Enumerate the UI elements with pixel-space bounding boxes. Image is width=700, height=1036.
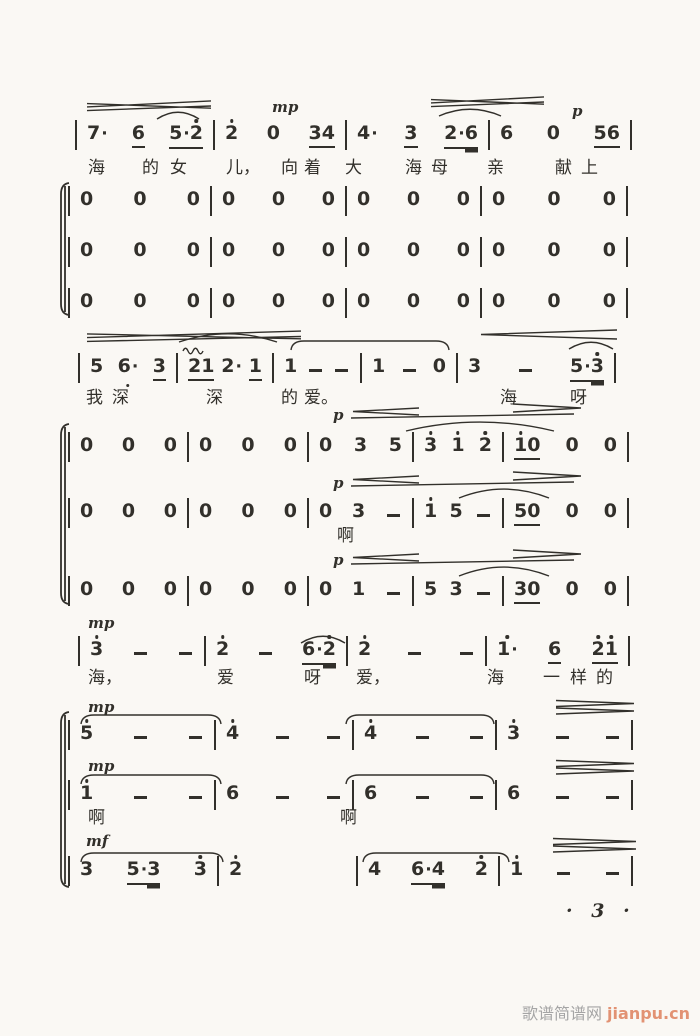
measure: 2 — [217, 856, 356, 886]
note: 6· — [118, 355, 139, 379]
measure: 4 — [214, 720, 352, 750]
rest-note: 0 — [357, 290, 370, 313]
dash-extension — [187, 722, 204, 745]
lyric-syllable: 啊 — [337, 528, 354, 545]
rest-note: 0 — [80, 434, 93, 457]
rest-note: 0 — [547, 122, 560, 145]
note: 3 — [352, 500, 365, 523]
rest-note: 0 — [457, 188, 470, 211]
measure: 1 — [498, 856, 633, 886]
note: 7· — [87, 122, 108, 146]
rest-note: 0 — [407, 188, 420, 211]
note: 6 — [500, 122, 513, 145]
slur — [458, 486, 550, 499]
rest-note: 0 — [322, 239, 335, 262]
dash-extension — [475, 578, 492, 601]
rest-note: 0 — [241, 578, 254, 601]
note: 2 — [190, 122, 203, 149]
decrescendo-hairpin — [512, 471, 582, 481]
rest-note: 0 — [199, 434, 212, 457]
note: 1 — [451, 434, 464, 457]
note: 2 — [229, 858, 242, 881]
lyric-syllable: 一 — [543, 670, 560, 687]
measure: 5000 — [502, 498, 629, 528]
beamed-note-group: 2·6 — [444, 122, 478, 149]
rest-note: 0 — [492, 188, 505, 211]
system-1-melody: 7·65·220344·32·66056 — [75, 120, 632, 150]
lyric-syllable: 女 — [170, 160, 187, 177]
rest-row-2: 000000000000 — [68, 237, 628, 267]
rest-note: 0 — [603, 290, 616, 313]
dash-extension — [257, 638, 274, 661]
dash-extension — [604, 782, 621, 805]
lyric-syllable: 啊 — [88, 810, 105, 827]
dash-extension — [274, 782, 291, 805]
note: 1 — [424, 500, 437, 523]
measure: 3 — [495, 720, 633, 750]
rest-note: 0 — [272, 188, 285, 211]
rest-note: 0 — [603, 239, 616, 262]
measure: 1 — [272, 353, 360, 383]
rest-note: 0 — [80, 290, 93, 313]
rest-note: 0 — [603, 188, 616, 211]
rest-note: 0 — [319, 578, 332, 601]
measure: 000 — [187, 498, 307, 528]
measure: 000 — [187, 432, 307, 462]
note: 4· — [357, 122, 378, 146]
dynamic-marking: p — [333, 553, 344, 568]
note: 3 — [153, 355, 166, 381]
slur — [458, 564, 550, 577]
note: 2· — [221, 355, 242, 379]
note: 6 — [548, 638, 561, 664]
slur — [80, 714, 222, 725]
beamed-note-group: 56 — [594, 122, 620, 148]
note: 5 — [514, 500, 527, 526]
measure: 000 — [210, 237, 345, 267]
decrescendo-hairpin — [512, 549, 582, 559]
measure: 1·621 — [485, 636, 630, 666]
slur — [345, 714, 495, 725]
measure: 2034 — [213, 120, 345, 150]
rest-note: 0 — [527, 578, 540, 604]
slur — [156, 110, 200, 120]
dynamic-marking: mp — [88, 616, 114, 631]
dash-extension — [554, 782, 571, 805]
rest-note: 0 — [241, 500, 254, 523]
hairpin-swell — [430, 96, 545, 108]
rest-note: 0 — [133, 239, 146, 262]
measure: 000 — [68, 432, 187, 462]
beamed-note-group: 34 — [309, 122, 335, 148]
rest-note: 0 — [319, 500, 332, 523]
lyric-syllable: 啊 — [340, 810, 357, 827]
measure: 3 — [78, 636, 204, 666]
note: 3 — [404, 122, 417, 148]
rest-note: 0 — [547, 290, 560, 313]
lyric-syllable: 样 — [570, 670, 587, 687]
rest-note: 0 — [322, 188, 335, 211]
slur — [405, 419, 555, 432]
note: 2 — [592, 638, 605, 664]
rest-note: 0 — [527, 500, 540, 526]
dash-extension — [414, 722, 431, 745]
note: 1 — [201, 355, 214, 381]
rest-note: 0 — [80, 239, 93, 262]
note: 6 — [507, 782, 520, 805]
rest-note: 0 — [357, 188, 370, 211]
lyric-syllable: 深 — [206, 390, 223, 407]
rest-note: 0 — [272, 290, 285, 313]
dash-extension — [414, 782, 431, 805]
measure: 56·3 — [78, 353, 176, 383]
rest-note: 0 — [604, 500, 617, 523]
rest-note: 0 — [407, 239, 420, 262]
dash-extension — [187, 782, 204, 805]
rest-note: 0 — [547, 239, 560, 262]
lyric-syllable: 海 — [487, 670, 504, 687]
dash-extension — [555, 858, 572, 881]
dash-extension — [385, 578, 402, 601]
rest-note: 0 — [357, 239, 370, 262]
dash-extension — [385, 500, 402, 523]
rest-note: 0 — [199, 578, 212, 601]
rest-note: 0 — [222, 239, 235, 262]
note: 3 — [468, 355, 481, 378]
slur — [80, 774, 222, 785]
slur — [568, 340, 614, 350]
mordent-ornament — [182, 345, 204, 353]
rest-note: 0 — [322, 290, 335, 313]
lyric-syllable: 的 — [142, 160, 159, 177]
note: 4 — [322, 122, 335, 148]
rest-note: 0 — [284, 578, 297, 601]
note: 6 — [465, 122, 478, 149]
measure: 6056 — [488, 120, 632, 150]
note: 6 — [607, 122, 620, 148]
dash-extension — [132, 638, 149, 661]
measure: 15 — [412, 498, 502, 528]
rest-note: 0 — [492, 290, 505, 313]
lyric-syllable: 深 — [112, 390, 129, 407]
measure: 03 — [307, 498, 412, 528]
note: 6 — [364, 782, 377, 805]
slur — [300, 634, 346, 644]
rest-note: 0 — [187, 239, 200, 262]
lyric-syllable: 的 — [281, 390, 298, 407]
note: 6 — [226, 782, 239, 805]
measure: 6 — [495, 780, 633, 810]
watermark-site-name: 歌谱简谱网 — [522, 1004, 602, 1023]
watermark: 歌谱简谱网 jianpu.cn — [522, 1006, 690, 1022]
decrescendo-hairpin — [512, 403, 582, 413]
watermark-site-url: jianpu.cn — [607, 1004, 690, 1023]
measure: 000 — [210, 186, 345, 216]
rest-note: 0 — [187, 290, 200, 313]
note: 3 — [309, 122, 322, 148]
accomp-row-3: 00000001533000 — [68, 576, 629, 606]
note: 1 — [514, 434, 527, 460]
rest-note: 0 — [164, 578, 177, 601]
rest-note: 0 — [199, 500, 212, 523]
beamed-note-group: 21 — [592, 638, 618, 664]
note: 5 — [450, 500, 463, 523]
dynamic-marking: p — [333, 408, 344, 423]
dash-extension — [554, 722, 571, 745]
rest-note: 0 — [80, 500, 93, 523]
note: 1 — [352, 578, 365, 601]
lyric-syllable: 上 — [581, 160, 598, 177]
rest-note: 0 — [222, 290, 235, 313]
lyric-syllable: 海 — [88, 160, 105, 177]
lyric-syllable: 的 — [596, 670, 613, 687]
rest-note: 0 — [527, 434, 540, 460]
beamed-note-group: 21 — [188, 355, 214, 381]
dash-extension — [177, 638, 194, 661]
measure: 000 — [68, 576, 187, 606]
rest-row-1: 000000000000 — [68, 186, 628, 216]
decrescendo-hairpin-double — [555, 700, 635, 714]
dash-extension — [604, 858, 621, 881]
rest-note: 0 — [566, 578, 579, 601]
rest-note: 0 — [566, 500, 579, 523]
rest-note: 0 — [566, 434, 579, 457]
measure: 3000 — [502, 576, 629, 606]
slur — [438, 107, 502, 117]
crescendo-hairpin — [480, 329, 618, 340]
beamed-note-group: 10 — [514, 434, 540, 460]
note: 3 — [507, 722, 520, 745]
accomp-row-2: 00000003155000 — [68, 498, 629, 528]
decrescendo-hairpin-double — [552, 838, 637, 852]
note: 1 — [605, 638, 618, 664]
note: 6 — [132, 122, 145, 148]
note: 5 — [594, 122, 607, 148]
note: 4 — [226, 722, 239, 745]
note: 2· — [444, 122, 465, 149]
beamed-note-group: 50 — [514, 500, 540, 526]
rest-note: 0 — [492, 239, 505, 262]
note: 3 — [90, 638, 103, 661]
rest-note: 0 — [122, 500, 135, 523]
measure: 000 — [480, 186, 628, 216]
measure: 000 — [480, 237, 628, 267]
note: 3 — [514, 578, 527, 604]
rest-note: 0 — [407, 290, 420, 313]
rest-note: 0 — [164, 500, 177, 523]
dash-extension — [458, 638, 475, 661]
measure: 000 — [345, 186, 480, 216]
system-2-melody: 56·3212·111035·3 — [78, 353, 616, 383]
rest-row-3: 000000000000 — [68, 288, 628, 318]
dash-extension — [132, 782, 149, 805]
measure: 2 — [346, 636, 485, 666]
note: 2 — [358, 638, 371, 661]
note: 5· — [570, 355, 591, 382]
rest-note: 0 — [457, 239, 470, 262]
note: 1· — [497, 638, 518, 662]
rest-note: 0 — [122, 578, 135, 601]
beamed-note-group: 30 — [514, 578, 540, 604]
dash-extension — [274, 722, 291, 745]
rest-note: 0 — [547, 188, 560, 211]
measure: 35·3 — [456, 353, 616, 383]
note: 2 — [216, 638, 229, 661]
rest-note: 0 — [272, 239, 285, 262]
dash-extension — [307, 355, 324, 378]
dash-extension — [406, 638, 423, 661]
dash-extension — [401, 355, 418, 378]
rest-note: 0 — [457, 290, 470, 313]
lyric-syllable: 爱， — [356, 670, 390, 687]
dash-extension — [132, 722, 149, 745]
rest-note: 0 — [80, 188, 93, 211]
lyric-syllable: 亲 — [487, 160, 504, 177]
lyric-syllable: 大 — [345, 160, 362, 177]
system-bracket — [58, 182, 70, 316]
measure: 53 — [412, 576, 502, 606]
dash-extension — [468, 722, 485, 745]
slur — [80, 852, 224, 863]
measure: 212·1 — [176, 353, 272, 383]
measure: 000 — [480, 288, 628, 318]
slur — [178, 331, 278, 343]
dynamic-marking: p — [572, 104, 583, 119]
lyric-syllable: 向 — [281, 160, 298, 177]
note: 2 — [479, 434, 492, 457]
lyric-syllable: 我 — [86, 390, 103, 407]
rest-note: 0 — [319, 434, 332, 457]
measure: 035 — [307, 432, 412, 462]
rest-note: 0 — [133, 188, 146, 211]
measure: 000 — [345, 237, 480, 267]
lyric-syllable: 海， — [88, 670, 122, 687]
lyric-syllable: 献 — [555, 160, 572, 177]
rest-note: 0 — [433, 355, 446, 378]
beamed-note-group: 5·3 — [570, 355, 604, 382]
note: 1 — [80, 782, 93, 805]
dash-extension — [333, 355, 350, 378]
dynamic-marking: mp — [88, 759, 114, 774]
note: 4 — [364, 722, 377, 745]
dash-extension — [517, 355, 534, 378]
note: 5 — [424, 578, 437, 601]
system-bracket — [58, 423, 70, 605]
page-number: · 3 · — [566, 900, 636, 922]
slur — [345, 774, 495, 785]
note: 2 — [188, 355, 201, 381]
lyric-syllable: 着 — [304, 160, 321, 177]
dash-extension — [604, 722, 621, 745]
note: 1 — [249, 355, 262, 381]
rest-note: 0 — [187, 188, 200, 211]
system-3-melody: 326·221·621 — [78, 636, 630, 666]
note: 5 — [90, 355, 103, 378]
dynamic-marking: p — [333, 476, 344, 491]
accomp-row-1: 0000000353121000 — [68, 432, 629, 462]
lyric-syllable: 呀 — [304, 670, 321, 687]
measure: 000 — [187, 576, 307, 606]
lyric-syllable: 海 — [405, 160, 422, 177]
dash-extension — [475, 500, 492, 523]
note: 5· — [169, 122, 190, 149]
measure: 000 — [210, 288, 345, 318]
note: 1 — [372, 355, 385, 378]
note: 5 — [389, 434, 402, 457]
rest-note: 0 — [604, 434, 617, 457]
measure: 10 — [360, 353, 456, 383]
measure: 7·65·2 — [75, 120, 213, 150]
dash-extension — [325, 782, 342, 805]
note: 1 — [284, 355, 297, 378]
note: 3 — [450, 578, 463, 601]
measure: 6 — [214, 780, 352, 810]
note: 3 — [591, 355, 604, 382]
measure: 000 — [345, 288, 480, 318]
measure: 000 — [68, 498, 187, 528]
dash-extension — [468, 782, 485, 805]
decrescendo-hairpin-double — [555, 760, 635, 774]
note: 5 — [80, 722, 93, 745]
sheet-music-page: · 3 · 歌谱简谱网 jianpu.cn 7·65·220344·32·660… — [0, 0, 700, 1036]
beamed-note-group: 5·2 — [169, 122, 203, 149]
lyric-syllable: 母 — [431, 160, 448, 177]
rest-note: 0 — [241, 434, 254, 457]
dash-extension — [325, 722, 342, 745]
slur — [290, 340, 450, 351]
measure: 312 — [412, 432, 502, 462]
measure: 000 — [68, 288, 210, 318]
lyric-syllable: 爱。 — [304, 390, 338, 407]
slur — [362, 852, 510, 863]
rest-note: 0 — [222, 188, 235, 211]
dynamic-marking: mp — [88, 700, 114, 715]
measure: 1000 — [502, 432, 629, 462]
rest-note: 0 — [164, 434, 177, 457]
note: 3 — [424, 434, 437, 457]
lyric-syllable: 爱 — [217, 670, 234, 687]
dynamic-marking: mf — [86, 834, 108, 849]
note: 1 — [510, 858, 523, 881]
rest-note: 0 — [284, 500, 297, 523]
dynamic-marking: mp — [272, 100, 298, 115]
system-bracket — [58, 711, 70, 888]
rest-note: 0 — [604, 578, 617, 601]
rest-note: 0 — [80, 578, 93, 601]
note: 2 — [225, 122, 238, 145]
measure: 000 — [68, 237, 210, 267]
lyric-syllable: 儿， — [226, 160, 260, 177]
rest-note: 0 — [284, 434, 297, 457]
measure: 01 — [307, 576, 412, 606]
measure: 000 — [68, 186, 210, 216]
rest-note: 0 — [267, 122, 280, 145]
measure: 4·32·6 — [345, 120, 488, 150]
note: 3 — [354, 434, 367, 457]
rest-note: 0 — [133, 290, 146, 313]
rest-note: 0 — [122, 434, 135, 457]
